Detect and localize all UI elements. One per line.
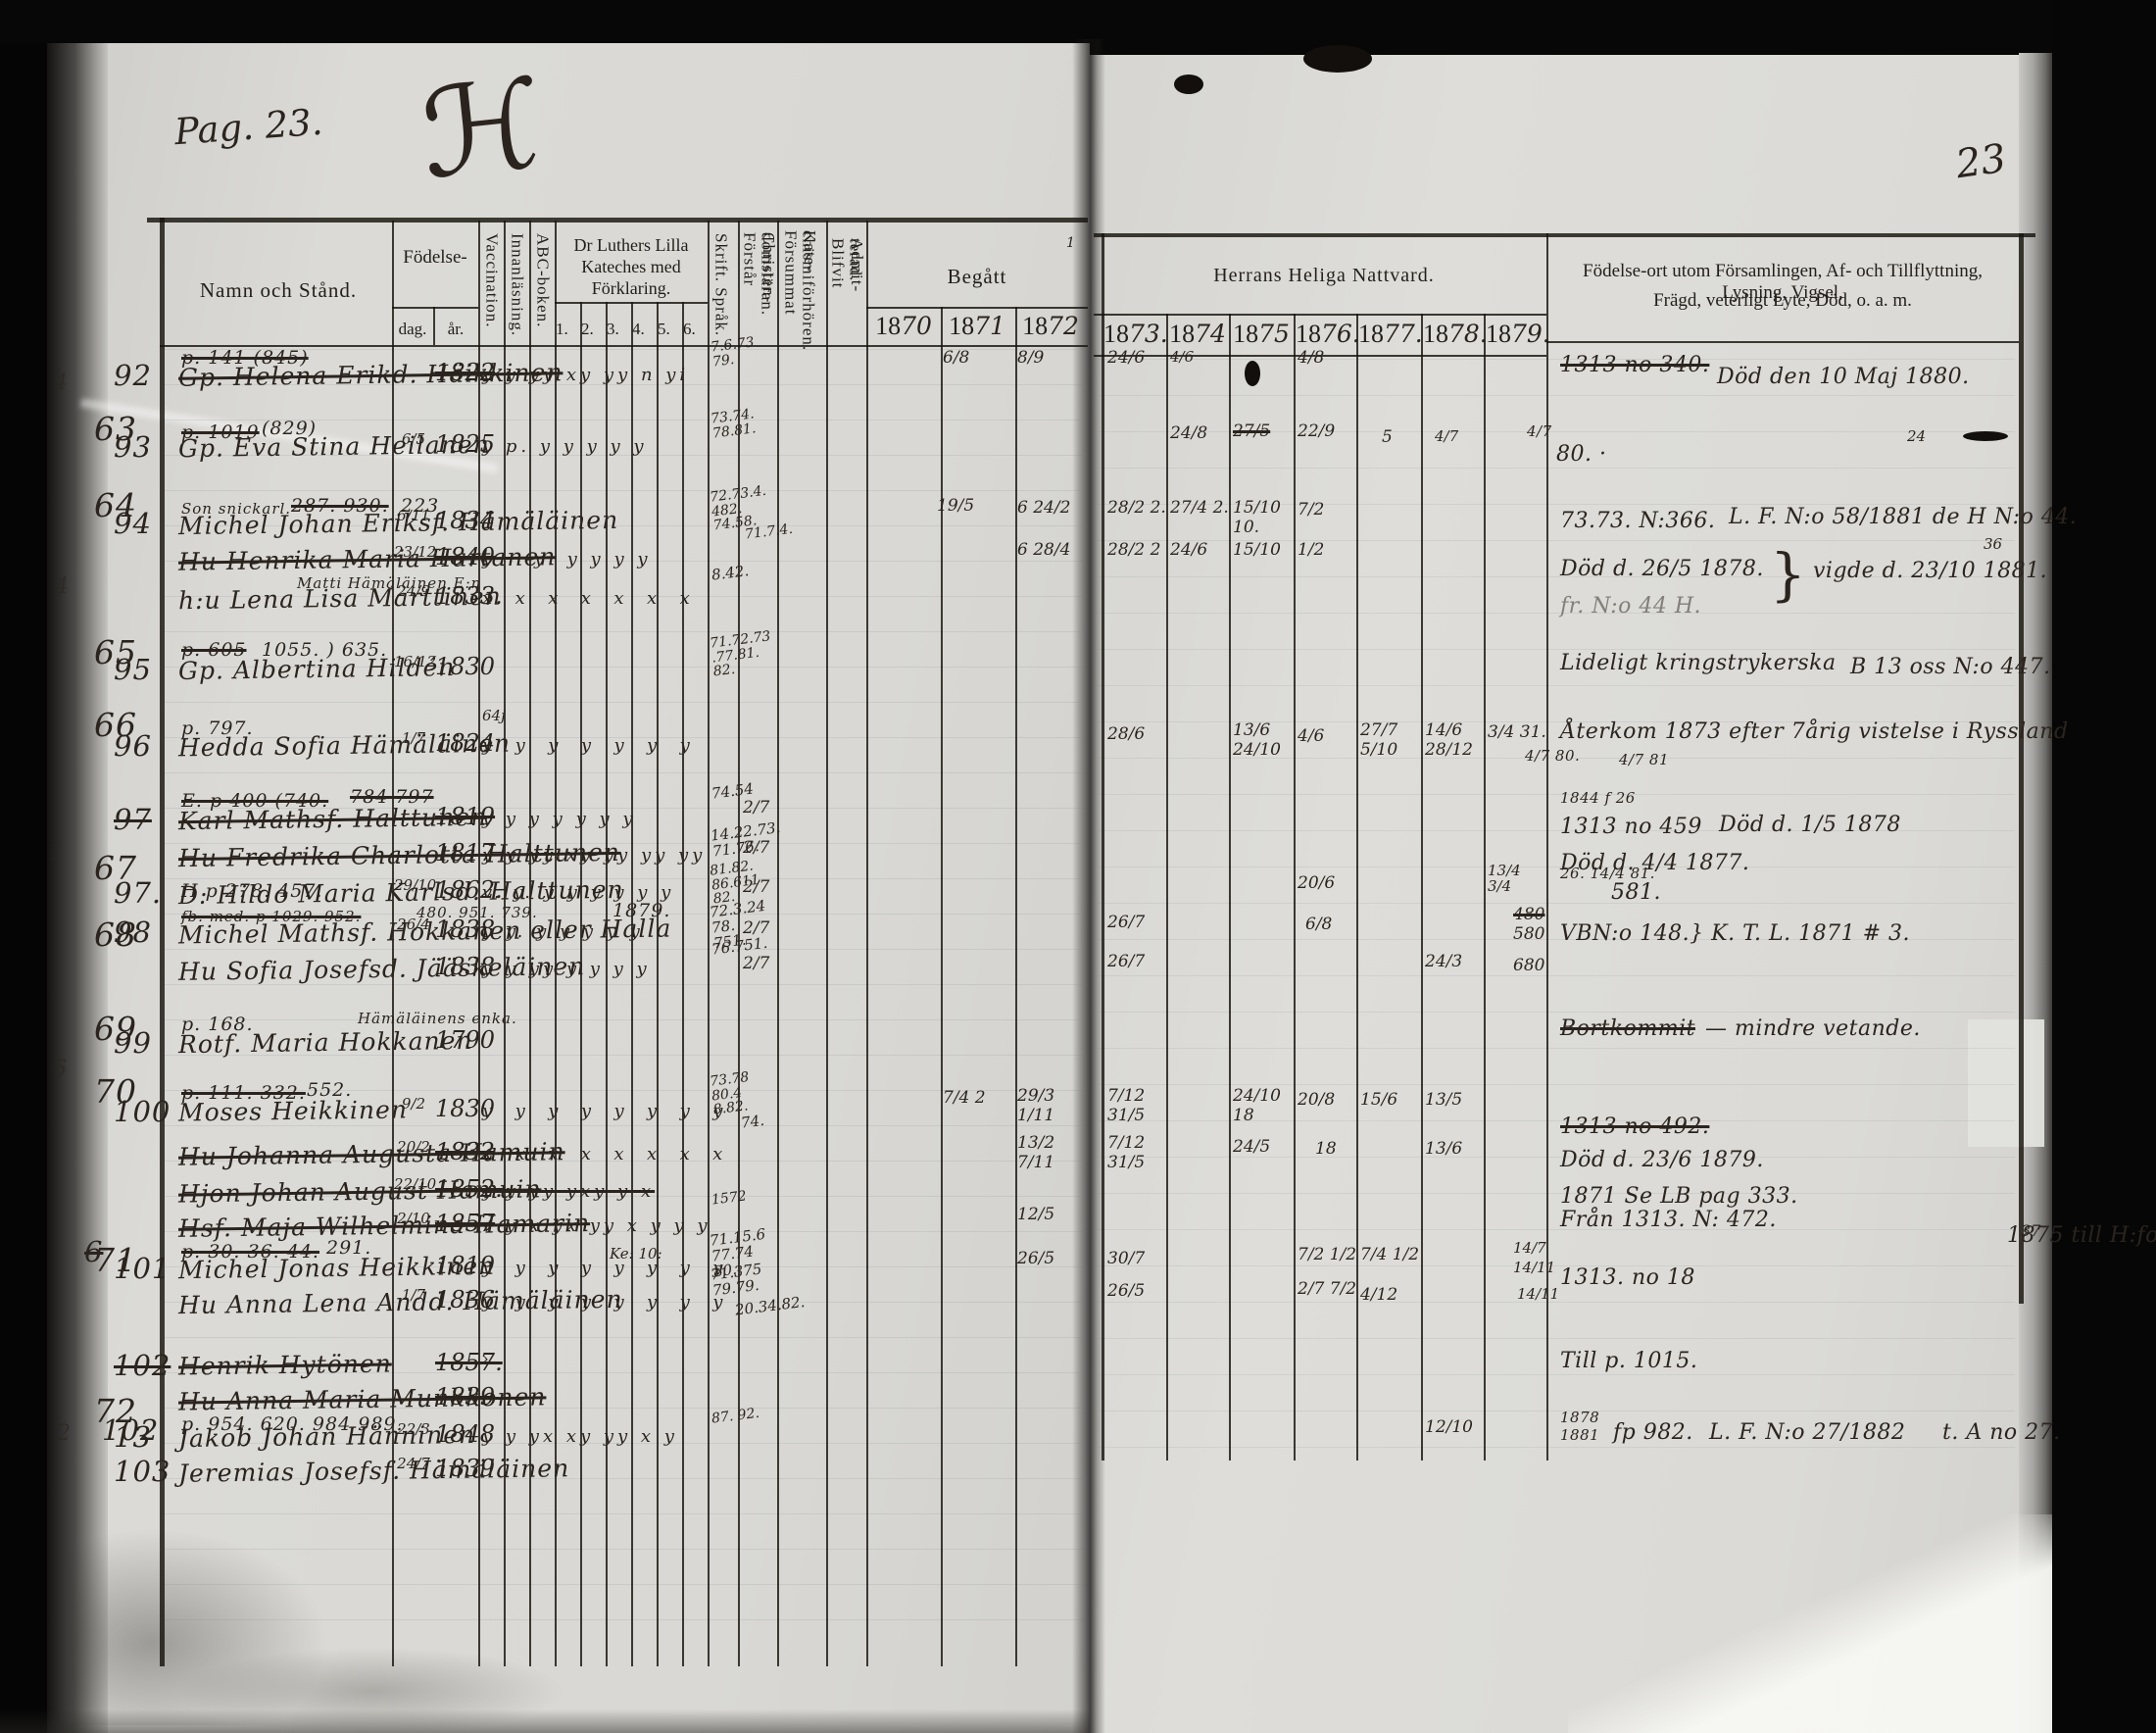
column-header-fodelse: Födelse- — [392, 247, 478, 269]
birth-day: 24/7 — [394, 1457, 433, 1471]
letter-heading: ℋ — [415, 53, 550, 207]
margin-row-number: 92 — [114, 359, 152, 392]
stray-annotation: 6 — [84, 1235, 103, 1268]
cell-entry-y1873: 30/7 — [1107, 1250, 1172, 1269]
cell-entry-y1877: 4/12 — [1360, 1286, 1425, 1306]
cell-entry-y1875: 13/6 24/10 — [1233, 721, 1298, 760]
paper-corner-fold — [1568, 1514, 2052, 1733]
check-marks: x x x x x x x — [482, 588, 694, 609]
column-subheader-katekes-number: 3. — [607, 320, 619, 339]
remark-note: VBN:o 148.} K. T. L. 1871 # 3. — [1560, 921, 1910, 946]
cell-entry-y1876: 6/8 — [1305, 916, 1370, 935]
remark-note: Till p. 1015. — [1560, 1349, 1697, 1373]
cell-entry-y1874: 24/8 — [1170, 424, 1235, 444]
year-label: 1876. — [1296, 320, 1354, 349]
column-subheader-katekes-number: 2. — [581, 320, 594, 339]
scan-black-right — [2052, 0, 2156, 1733]
remark-note: } — [1770, 541, 1806, 608]
cell-entry-y1879: 680 — [1513, 957, 1578, 976]
cell-entry-y1872: 6 28/4 — [1017, 541, 1082, 561]
birth-year: 1830 — [435, 653, 495, 680]
cell-entry-y1872: 29/3 1/11 — [1017, 1087, 1082, 1125]
check-marks: y y yy y y y y — [482, 959, 651, 979]
check-marks: y p. y y y y y — [482, 436, 648, 457]
cell-entry-y1876: 7/2 — [1298, 501, 1362, 520]
remark-note: 581. — [1611, 880, 1661, 905]
remark-note: L. F. N:o 58/1881 de H N:o 44. — [1729, 505, 2077, 529]
cell-entry-y1872: 26/5 — [1017, 1250, 1082, 1269]
cell-entry-y1873: 28/2 2. — [1107, 499, 1172, 519]
cell-entry-y1871: 7/4 2 — [943, 1089, 1007, 1109]
stray-annotation: 37 — [2021, 1221, 2040, 1240]
table-rule-horizontal — [392, 307, 478, 309]
column-subheader-katekes-number: 1. — [556, 320, 568, 339]
ink-blob — [1303, 45, 1372, 73]
table-rule-horizontal — [1094, 314, 1546, 316]
check-marks: y y y y y y y y — [482, 1258, 726, 1278]
remark-note: — mindre vetande. — [1705, 1016, 1921, 1041]
check-marks: y y yy yxy y x — [482, 1181, 655, 1202]
row-name: Moses Heikkinen — [178, 1095, 408, 1126]
margin-row-number: 95 — [114, 653, 152, 686]
remark-note: B 13 oss N:o 447. — [1850, 655, 2051, 679]
cell-entry-y1872: 12/5 — [1017, 1206, 1082, 1225]
year-label: 1878. — [1423, 320, 1482, 349]
cell-entry-y1873: 26/7 — [1107, 914, 1172, 933]
cell-entry-y1875: 24/5 — [1233, 1138, 1298, 1158]
remark-note: 4/7 80. — [1525, 747, 1580, 765]
stray-annotation: 1 — [49, 841, 63, 866]
column-subheader-katekes-number: 5. — [658, 320, 670, 339]
paper-smudge — [176, 1647, 568, 1733]
cell-entry-y1873: 26/7 — [1107, 953, 1172, 972]
table-rule-vertical — [1102, 233, 1104, 1461]
stray-annotation: 4 — [54, 371, 68, 395]
remark-note: Död d. 26/5 1878. — [1560, 557, 1764, 581]
cell-entry-y1872: 8/9 — [1017, 349, 1082, 369]
table-rule-vertical — [657, 302, 659, 1666]
cell-entry-y1878: 13/6 — [1425, 1140, 1490, 1160]
table-rule-vertical — [1294, 314, 1296, 1461]
cell-entry-y1872: 13/2 7/11 — [1017, 1134, 1082, 1172]
margin-row-number: 103 — [114, 1455, 171, 1488]
remark-note: fp 982. — [1613, 1420, 1693, 1445]
year-label: 1871 — [941, 312, 1013, 341]
cell-entry-forstar: 2/7 — [743, 878, 808, 898]
remark-note: 80. · — [1556, 442, 1606, 467]
remark-note: 4/7 81 — [1619, 751, 1669, 768]
cell-entry-y1876: 22/9 — [1298, 422, 1362, 442]
ink-blob — [1174, 74, 1203, 94]
remark-note: 73.73. N:366. — [1560, 509, 1715, 533]
column-header-katekes-2: Kateches med — [555, 257, 708, 277]
remark-note: Återkom 1873 efter 7årig vistelse i Ryss… — [1560, 719, 2069, 744]
table-rule-vertical — [682, 302, 684, 1666]
birth-day: 16/12 — [394, 655, 433, 669]
table-rule-horizontal — [147, 218, 1088, 223]
check-marks: y · y y y y y — [482, 549, 652, 569]
remark-note: 1313 no 340. — [1560, 353, 1709, 377]
table-rule-vertical — [160, 218, 165, 1666]
row-note: Hämäläinens enka. — [358, 1010, 517, 1027]
stray-annotation: 102 — [102, 1413, 159, 1447]
stray-annotation: 6 — [53, 1057, 67, 1081]
cell-entry-y1875: 24/10 18 — [1233, 1087, 1298, 1125]
birth-day: 29/10 — [394, 878, 433, 893]
ink-blob — [1963, 431, 2008, 441]
table-rule-vertical — [433, 307, 435, 345]
check-marks: y y y y y y y — [482, 809, 637, 829]
cell-entry-y1873: 24/6 — [1107, 349, 1172, 369]
scanned-parish-register: Pag. 23. ℋ 23 Namn och Stånd. Födelse- d… — [0, 0, 2156, 1733]
birth-year: 1834 — [435, 507, 495, 534]
column-header-nattvard: Herrans Heliga Nattvard. — [1102, 265, 1546, 287]
table-rule-vertical — [708, 221, 710, 1666]
remark-note: Död den 10 Maj 1880. — [1717, 365, 1970, 389]
column-subheader-katekes-number: 6. — [683, 320, 696, 339]
column-header-skriftens-sprak: Skrift. Språk. — [711, 233, 731, 345]
cell-entry-y1875: 27/5 — [1233, 422, 1298, 442]
table-rule-vertical — [2019, 233, 2024, 1304]
cell-entry-y1877: 27/7 5/10 — [1360, 721, 1425, 760]
column-header-remarks-2: Frägd, veterligt Lyte, Död, o. a. m. — [1550, 290, 2015, 312]
cell-entry-k3: Ke: 10: — [610, 1246, 674, 1263]
table-rule-vertical — [1484, 314, 1486, 1461]
margin-row-number: 101 — [114, 1252, 171, 1285]
cell-entry-y1873: 26/5 — [1107, 1282, 1172, 1302]
birth-day: 23/12 — [394, 545, 433, 560]
cell-entry-y1873: 7/12 31/5 — [1107, 1134, 1172, 1172]
birth-day: 2/10 — [394, 1212, 433, 1226]
table-rule-horizontal — [555, 302, 708, 304]
check-marks: y y yy xy yy yy yy — [482, 845, 706, 866]
birth-year: 1839 — [435, 1383, 495, 1411]
margin-row-number: 97. — [114, 876, 162, 910]
remark-note: 1871 Se LB pag 333. — [1560, 1184, 1798, 1209]
check-marks: y y. y y y y y — [482, 921, 644, 942]
remark-note: fr. N:o 44 H. — [1560, 594, 1701, 619]
check-marks: x x x x x x x x — [482, 1144, 726, 1164]
cell-entry-y1879: 14/7 — [1513, 1240, 1578, 1257]
cell-entry-y1878: 13/5 — [1425, 1091, 1490, 1111]
column-header-dag: dag. — [392, 320, 433, 339]
year-label: 1873. — [1103, 320, 1164, 349]
margin-row-number: 100 — [114, 1095, 171, 1128]
cell-entry-y1876: 7/2 1/2 — [1298, 1246, 1362, 1265]
birth-day: 1/7 — [394, 731, 433, 746]
table-rule-vertical — [777, 221, 779, 1666]
column-header-abcboken: ABC-boken. — [533, 233, 553, 343]
scan-black-top-right — [1090, 0, 2156, 55]
stray-annotation: 36 — [1984, 535, 2002, 553]
remark-note: 1313 no 492. — [1560, 1114, 1709, 1139]
year-label: 1877. — [1358, 320, 1419, 349]
column-header-namn: Namn och Stånd. — [167, 278, 390, 303]
margin-row-number: 98 — [114, 916, 152, 949]
birth-day: 22/3 — [394, 1422, 433, 1437]
column-header-katekes-1: Dr Luthers Lilla — [555, 235, 708, 256]
table-rule-vertical — [631, 302, 633, 1666]
column-header-ar: år. — [433, 320, 478, 339]
cell-entry-y1878: 12/10 — [1425, 1418, 1490, 1438]
row-name: Henrik Hytönen — [178, 1349, 392, 1380]
cell-entry-y1876: 4/6 — [1298, 727, 1362, 747]
cell-entry-y1879: 14/11 — [1517, 1286, 1582, 1303]
stray-annotation: 24 — [1907, 427, 1926, 445]
margin-row-number: 94 — [114, 507, 152, 540]
remark-note: t. A no 27. — [1942, 1420, 2061, 1445]
table-rule-horizontal — [1546, 341, 2019, 343]
remark-note: 1878 — [1560, 1409, 1599, 1426]
column-header-forsummat-2: chismiförhören. — [799, 230, 818, 346]
margin-row-number: 97 — [114, 803, 152, 836]
cell-entry-y1871: 19/5 — [937, 497, 1002, 517]
remark-note: 4/7 — [1527, 422, 1552, 440]
cell-entry-y1875: 15/10 — [1233, 541, 1298, 561]
stray-annotation: 1 — [1066, 235, 1075, 251]
column-subheader-katekes-number: 4. — [632, 320, 645, 339]
year-label: 1875 — [1231, 320, 1292, 349]
cell-entry-y1874: 24/6 — [1170, 541, 1235, 561]
remark-note: Död d. 1/5 1878 — [1719, 813, 1901, 837]
birth-day: 22/10 — [394, 1177, 433, 1192]
stray-annotation: 2 — [57, 1421, 71, 1446]
cell-entry-y1874: 4/6 — [1170, 349, 1235, 366]
cell-entry-y1873: 28/2 2 — [1107, 541, 1172, 561]
check-marks: y y y y y y y — [482, 735, 694, 756]
remark-note: 1881 — [1560, 1426, 1599, 1444]
cell-entry-y1871: 6/8 — [943, 349, 1007, 369]
birth-day: 6/5 — [394, 432, 433, 447]
cell-entry-y1876: 1/2 — [1298, 541, 1362, 561]
table-rule-vertical — [866, 221, 868, 1666]
margin-row-number: 99 — [114, 1026, 152, 1060]
year-label: 1874 — [1168, 320, 1227, 349]
remark-note: Bortkommit — [1560, 1016, 1695, 1041]
cell-entry-y1873: 28/6 — [1107, 725, 1172, 745]
cell-entry-y1873: 7/12 31/5 — [1107, 1087, 1172, 1125]
cell-entry-forstar: 2/7 — [743, 799, 808, 818]
cell-entry-y1874: 27/4 2. — [1170, 499, 1235, 519]
cell-entry-y1877: 15/6 — [1360, 1091, 1425, 1111]
cell-entry-y1872: 6 24/2 — [1017, 499, 1082, 519]
cell-entry-y1876: 2/7 7/2 — [1298, 1280, 1362, 1300]
margin-row-number: 102 — [114, 1349, 171, 1382]
check-marks: v y x yx yy x y y y — [482, 1215, 711, 1236]
table-rule-vertical — [1229, 314, 1231, 1461]
table-rule-vertical — [826, 221, 828, 1666]
cell-entry-y1878: 4/7 — [1435, 428, 1499, 445]
margin-row-number: 96 — [114, 729, 152, 763]
column-header-forstar-2: domsläran. — [758, 232, 777, 346]
cell-entry-y1878: 14/6 28/12 — [1425, 721, 1490, 760]
year-label: 1870 — [868, 312, 939, 341]
margin-row-number: 93 — [114, 430, 152, 464]
remark-note: 1844 f 26 — [1560, 789, 1636, 807]
ink-blob — [1245, 361, 1260, 386]
check-marks: y y yy xy yy n yi — [482, 365, 689, 385]
cell-entry-y1876: 18 — [1315, 1140, 1380, 1160]
remark-note: vigde d. 23/10 1881. — [1813, 559, 2047, 583]
row-name: Jeremias Josefsf. Hämäläinen — [178, 1454, 570, 1488]
check-marks: y y yx xy yy x y — [482, 1426, 678, 1447]
cell-entry-y1877: 7/4 1/2 — [1360, 1246, 1425, 1265]
check-marks: y y y y y y y y — [482, 1292, 726, 1312]
cell-entry-y1875: 15/10 10. — [1233, 499, 1298, 537]
birth-day: 6/11 — [394, 509, 433, 523]
column-header-innanlasning: Innanläsning. — [508, 233, 527, 343]
column-header-begatt: Begått — [866, 265, 1088, 289]
cell-entry-vacc: › — [482, 1351, 547, 1370]
page-edge-right — [2019, 53, 2054, 1733]
year-label: 1879. — [1486, 320, 1544, 349]
birth-day: 1/7 — [394, 1288, 433, 1303]
cell-entry-y1878: 24/3 — [1425, 953, 1490, 972]
column-header-vaccination: Vaccination. — [482, 233, 502, 343]
birth-day: 24/9 — [394, 584, 433, 599]
table-rule-horizontal — [866, 307, 1088, 309]
cell-entry-y1879: 3/4 31. — [1488, 723, 1552, 743]
remark-note: Död d. 23/6 1879. — [1560, 1148, 1764, 1172]
birth-day: 20/2 — [394, 1140, 433, 1155]
year-label: 1872 — [1015, 312, 1086, 341]
scan-black-left — [0, 0, 47, 1733]
remark-note: 1313 no 459 — [1560, 815, 1702, 839]
column-header-blifvit-2: terad. — [846, 238, 865, 344]
cell-entry-skrift: 71.72.73 .77.81. 82. — [710, 630, 773, 680]
right-page-number: 23 — [1953, 136, 2009, 188]
birth-year: 1790 — [435, 1026, 495, 1054]
check-marks: y y y y y y y y — [482, 1101, 726, 1121]
stray-annotation: 4 — [55, 574, 69, 599]
row-name: Rotf. Maria Hokkanen — [178, 1026, 473, 1059]
birth-day: 9/2 — [394, 1097, 433, 1112]
birth-day: 26/4 — [394, 917, 433, 932]
cell-entry-y1879: 3/4 — [1488, 878, 1552, 895]
remark-note: Från 1313. N: 472. — [1560, 1208, 1777, 1232]
table-rule-horizontal — [1094, 233, 2035, 237]
cell-entry-y1876: 4/8 — [1298, 349, 1362, 369]
birth-year: 1839 — [435, 1455, 495, 1482]
cell-entry-vacc: 64j — [482, 708, 547, 724]
remark-note: Lideligt kringstrykerska — [1560, 651, 1837, 675]
cell-entry-y1876: 20/8 — [1298, 1091, 1362, 1111]
cell-entry-forstar: 2/7 — [743, 955, 808, 974]
cell-entry-y1876: 20/6 — [1298, 874, 1362, 894]
column-header-katekes-3: Förklaring. — [555, 278, 708, 299]
cell-entry-skrift: 73.78 80.4 8.82. — [710, 1068, 773, 1118]
cell-entry-forstar: 2/7 — [743, 839, 808, 859]
remark-note: L. F. N:o 27/1882 — [1709, 1420, 1905, 1445]
